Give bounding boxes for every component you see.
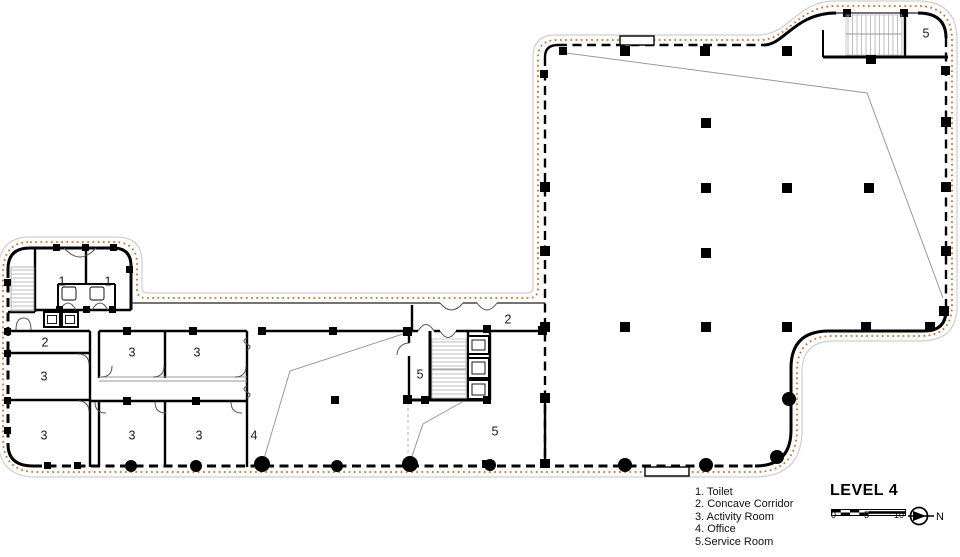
lift-shaft-car [66,316,75,324]
concave-door [440,303,463,310]
room-label: 3 [194,345,201,359]
north-label: N [936,511,944,523]
elevator-car [472,362,485,374]
lift-shaft-car [48,316,57,324]
door-arc [78,401,89,412]
nw-stair-hatch [11,267,34,311]
legend-item: 5.Service Room [695,536,793,548]
room-label: 3 [41,369,48,383]
floor-plan-drawing: 11233333345255 [0,0,960,557]
room-label: 1 [105,274,112,288]
main-hall [33,13,946,476]
room-label: 3 [41,428,48,442]
toilet-stall [62,287,76,300]
columns-round [125,392,796,472]
columns-square [4,46,951,469]
legend: 1. Toilet 2. Concave Corridor 3. Activit… [695,486,793,548]
door-arc [235,366,246,377]
door-arc [78,354,89,365]
north-arrow-graphic: N [906,504,952,528]
mid-corridor-lines [99,377,247,381]
elevator-car [472,340,485,350]
legend-item: 3. Activity Room [695,511,793,523]
door-arc [231,402,242,413]
legend-item: 1. Toilet [695,486,793,498]
wing-topleft-corner [8,248,30,269]
door-arc [153,366,164,377]
hall-northeast-s-wall [764,13,836,45]
wing-bottomleft-corner [8,444,33,466]
room-label: 3 [129,428,136,442]
overhang-line [410,402,462,462]
room-label: 1 [59,274,66,288]
room-label: 3 [129,345,136,359]
scale-tick: 5 [864,510,869,520]
toilet-stall [90,287,104,300]
mid-rooms-walls [99,331,247,467]
legend-item: 4. Office [695,523,793,535]
plan-title: LEVEL 4 [830,482,898,500]
door-arc [397,343,409,355]
room-label: 4 [251,428,258,442]
site-boundary-line [0,1,957,477]
lobby-door-arch [16,318,31,330]
roof-overhang-line [566,53,943,298]
floor-plan-sheet: 11233333345255 1. Toilet 2. Concave Corr… [0,0,960,557]
block-stair-hatch [846,15,902,55]
room-label: 3 [196,428,203,442]
room-label: 5 [417,367,424,381]
door-arc [440,331,456,338]
scale-tick: 10 [894,510,904,520]
room-label: 5 [492,424,499,438]
legend-item: 2. Concave Corridor [695,498,793,510]
south-entrance [645,467,689,476]
concave-door [477,303,497,310]
hall-southeast-curve-wall [755,310,946,466]
scale-tick: 0 [831,510,836,520]
door-arc [95,402,106,413]
door-arc [101,366,112,377]
site-outline [0,1,957,477]
north-entrance [620,36,654,45]
room-label: 2 [42,335,49,349]
elevator-car [472,384,485,395]
scale-ticks: 0 5 10 [831,509,907,520]
hall-topleft-corner [545,45,558,57]
door-arc [418,325,434,332]
room-label: 2 [505,312,512,326]
room-label: 5 [923,26,930,40]
